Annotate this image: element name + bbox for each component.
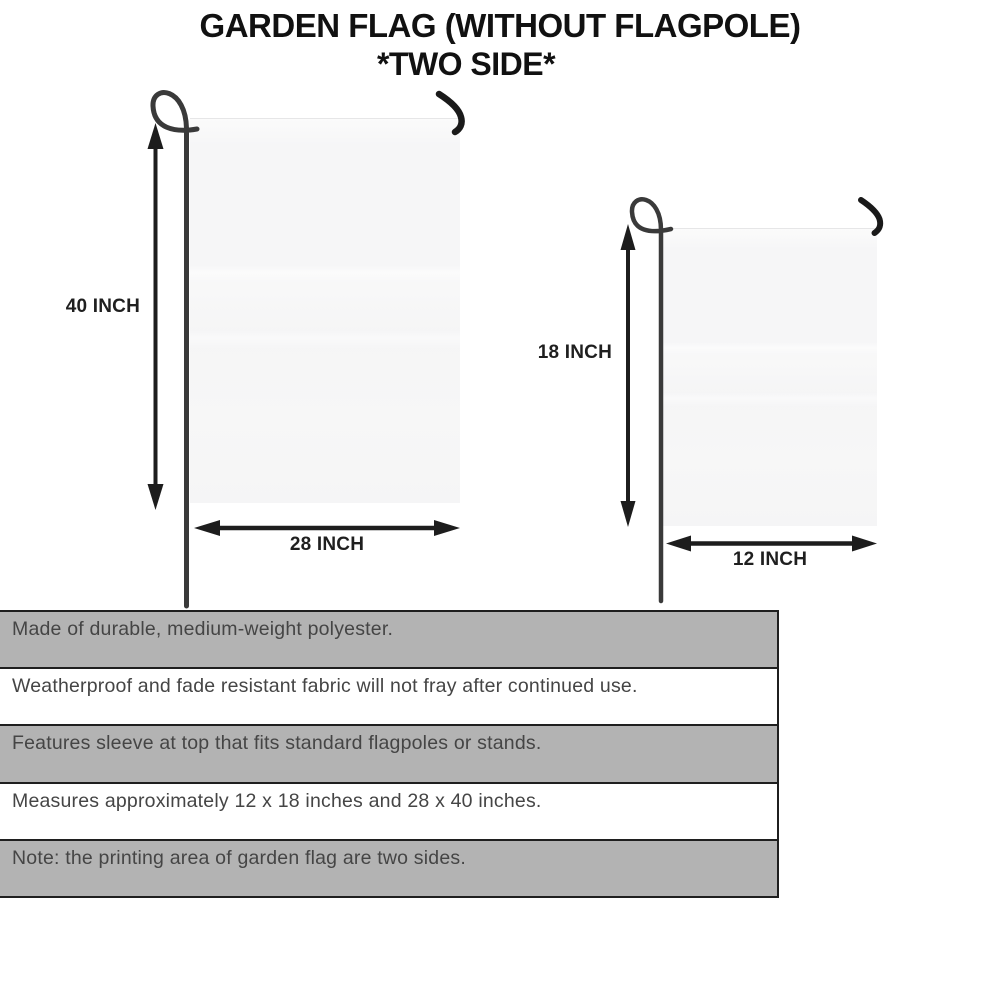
large-flag-fabric bbox=[190, 118, 460, 503]
large-height-arrowhead-top bbox=[148, 123, 164, 149]
title-block: GARDEN FLAG (WITHOUT FLAGPOLE) *TWO SIDE… bbox=[0, 6, 1000, 82]
large-width-arrowhead-left bbox=[194, 520, 220, 536]
large-height-label: 40 INCH bbox=[38, 296, 140, 318]
feature-row-material: Made of durable, medium-weight polyester… bbox=[0, 612, 777, 667]
small-width-label: 12 INCH bbox=[670, 549, 870, 571]
large-width-label: 28 INCH bbox=[227, 534, 427, 556]
small-height-arrowhead-bottom bbox=[621, 501, 636, 527]
small-height-label: 18 INCH bbox=[510, 342, 612, 364]
feature-text: Features sleeve at top that fits standar… bbox=[12, 732, 541, 755]
large-width-arrowhead-right bbox=[434, 520, 460, 536]
feature-text: Made of durable, medium-weight polyester… bbox=[12, 618, 393, 641]
feature-text: Measures approximately 12 x 18 inches an… bbox=[12, 790, 542, 813]
page-subtitle: *TWO SIDE* bbox=[0, 46, 966, 83]
feature-row-note: Note: the printing area of garden flag a… bbox=[0, 839, 777, 896]
feature-row-weatherproof: Weatherproof and fade resistant fabric w… bbox=[0, 667, 777, 724]
garden-flag-size-infographic: GARDEN FLAG (WITHOUT FLAGPOLE) *TWO SIDE… bbox=[0, 0, 1000, 1000]
small-height-arrowhead-top bbox=[621, 224, 636, 250]
features-table: Made of durable, medium-weight polyester… bbox=[0, 610, 779, 898]
large-height-arrowhead-bottom bbox=[148, 484, 164, 510]
feature-text: Weatherproof and fade resistant fabric w… bbox=[12, 675, 638, 698]
page-title: GARDEN FLAG (WITHOUT FLAGPOLE) bbox=[0, 6, 1000, 46]
feature-row-measurements: Measures approximately 12 x 18 inches an… bbox=[0, 782, 777, 839]
feature-text: Note: the printing area of garden flag a… bbox=[12, 847, 466, 870]
feature-row-sleeve: Features sleeve at top that fits standar… bbox=[0, 724, 777, 781]
small-flag-fabric bbox=[663, 228, 877, 526]
